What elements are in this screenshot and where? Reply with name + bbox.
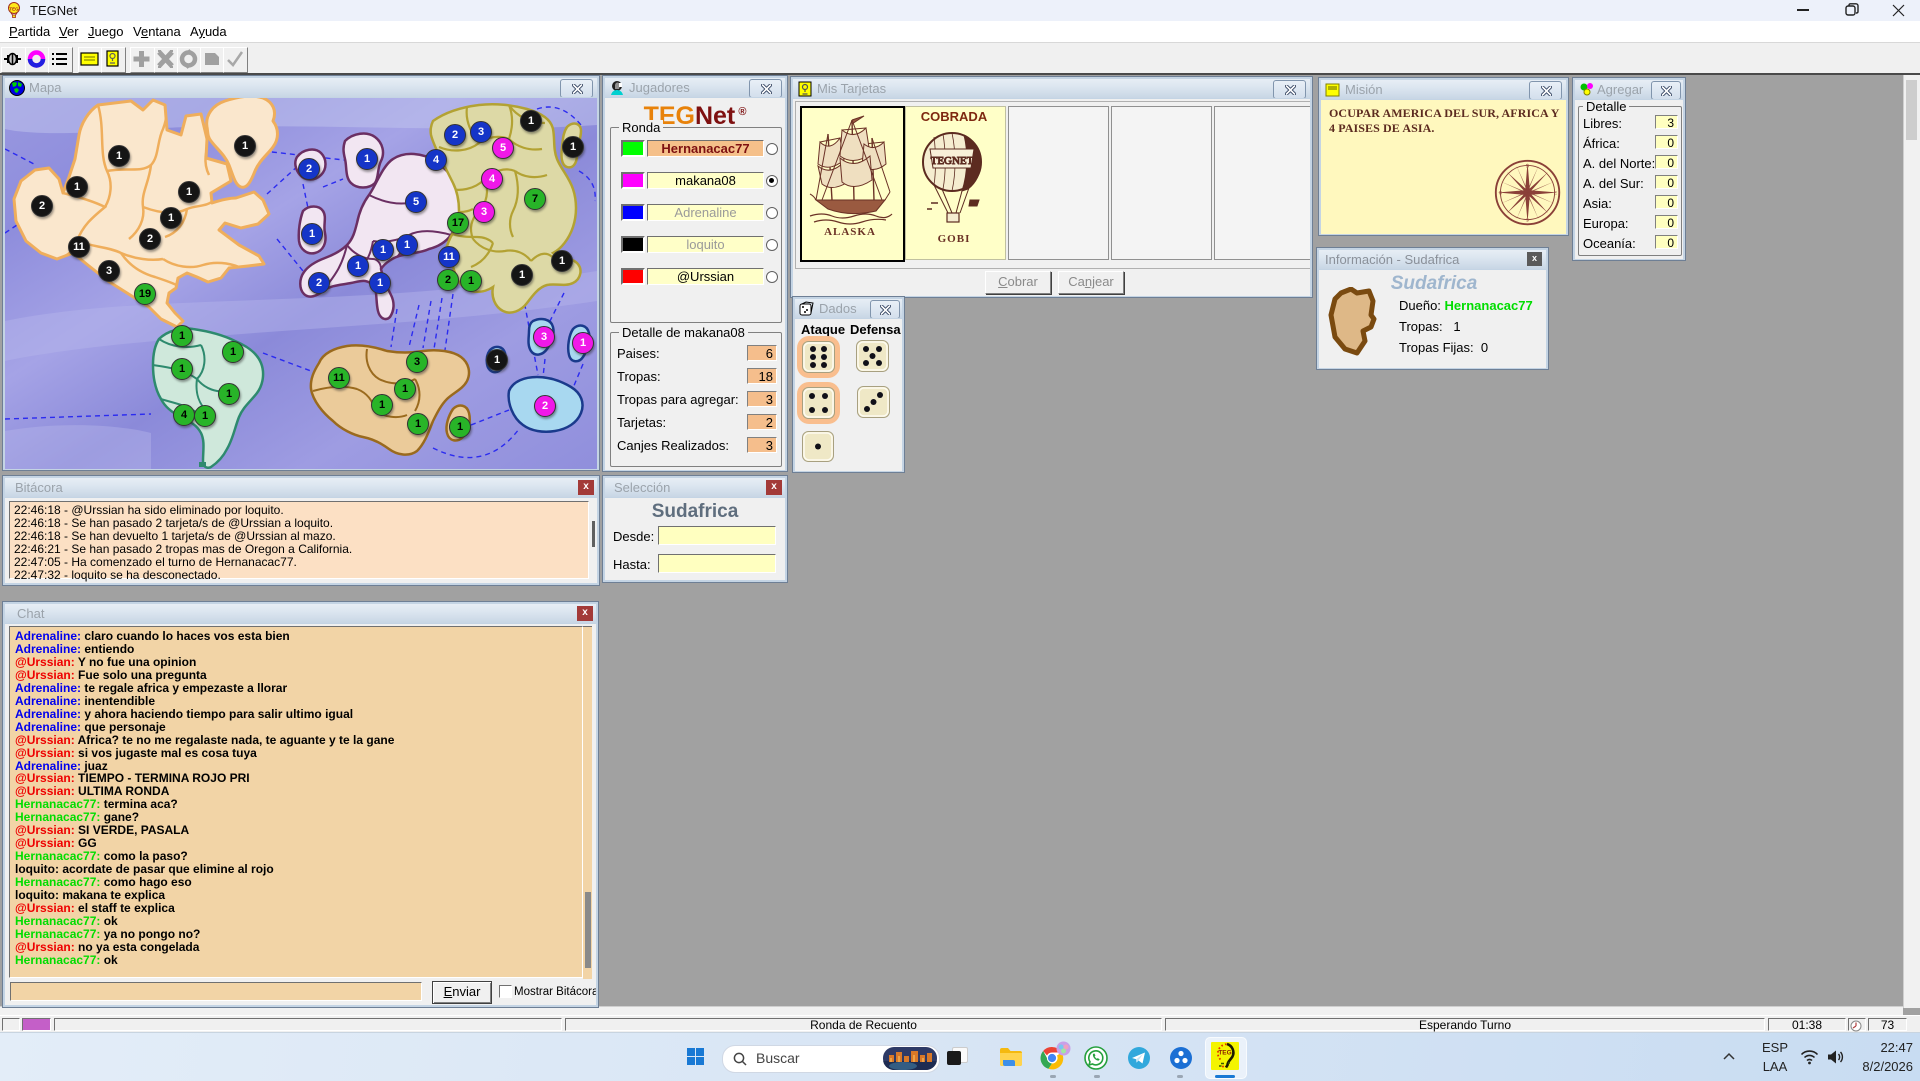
svg-text:ALASKA: ALASKA [824, 226, 876, 236]
svg-text:E: E [1554, 191, 1557, 196]
svg-text:TEG: TEG [1218, 1050, 1231, 1057]
svg-text:TEGNET: TEGNET [931, 155, 974, 167]
svg-text:S: S [1526, 218, 1529, 223]
svg-text:O: O [1499, 191, 1503, 196]
svg-text:COBRADA: COBRADA [921, 109, 988, 124]
svg-text:TEG: TEG [9, 7, 19, 12]
svg-text:GOBI: GOBI [938, 233, 971, 245]
